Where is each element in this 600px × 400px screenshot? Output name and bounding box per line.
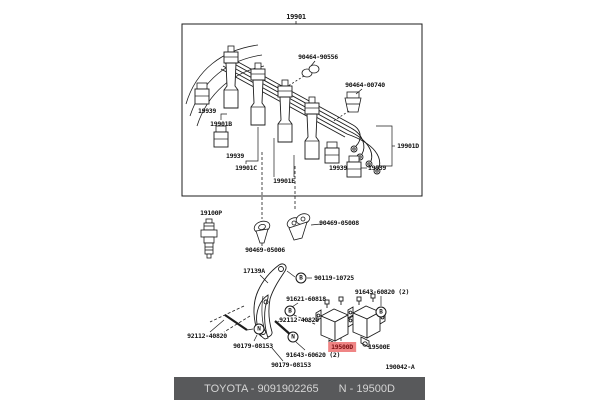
part-label-holder-3: 19939 (329, 164, 347, 172)
footer-reference-text: N - 19500D (339, 383, 395, 395)
figure-code-label: 190042-A (386, 363, 415, 371)
part-label-coil-no2: 19500E (368, 343, 390, 351)
bolt-callout-circle: B (376, 307, 387, 318)
footer-bar: TOYOTA - 9091902265 N - 19500D (174, 377, 425, 400)
bolt-callout-circle: B (296, 273, 307, 284)
part-label-cord-no4: 19901D (397, 142, 419, 150)
plug-boot-drawing (278, 80, 292, 142)
part-label-holder-1: 19939 (198, 107, 216, 115)
part-label-holder-4: 19939 (368, 164, 386, 172)
cord-clamp-drawing (288, 61, 319, 86)
spark-plug-drawing (201, 219, 217, 258)
part-label-stud-1: 92112-40820 (279, 316, 319, 324)
cord-grommet-drawing (332, 89, 362, 122)
nut-callout-circle: N (254, 324, 265, 335)
bolt-callout-circle: B (285, 306, 296, 317)
part-label-bolt-upper: 90119-10725 (314, 274, 354, 282)
part-label-coil-no1-highlighted: 19500D (328, 342, 356, 352)
part-label-bracket: 17139A (243, 267, 265, 275)
position-sensor-a-drawing (253, 219, 272, 246)
part-label-bolt-lower: 91643-60620 (2) (286, 351, 340, 359)
part-label-sensor-a: 90469-05006 (245, 246, 285, 254)
part-label-cord-set: 19901 (286, 13, 306, 21)
cord-holder-drawing (195, 83, 209, 104)
part-label-nut-2: 90179-08153 (271, 361, 311, 369)
part-label-clamp-b: 90464-00740 (345, 81, 385, 89)
cord-holder-drawing (347, 156, 361, 177)
part-label-cord-no3: 19901C (235, 164, 257, 172)
part-label-bolt-right: 91643-60820 (2) (355, 288, 409, 296)
part-label-stud-2: 92112-40820 (187, 332, 227, 340)
cord-holder-drawing (214, 126, 228, 147)
part-label-cord-no5: 19901E (273, 177, 295, 185)
footer-part-number-text: TOYOTA - 9091902265 (204, 383, 319, 395)
part-label-nut-1: 90179-08153 (233, 342, 273, 350)
plug-boot-drawing (305, 97, 319, 159)
parts-diagram-page: 19901 90464-90556 90464-00740 19939 1990… (0, 0, 600, 400)
part-label-cord-no2: 19901B (210, 120, 232, 128)
ignition-coil-2-drawing (348, 294, 385, 347)
part-label-holder-2: 19939 (226, 152, 244, 160)
position-sensor-b-drawing (286, 212, 321, 240)
nut-callout-circle: N (288, 332, 299, 343)
part-label-spark-plug: 19100P (200, 209, 222, 217)
cord-holder-drawing (325, 142, 339, 163)
part-label-bolt-mid: 91621-60818 (286, 295, 326, 303)
part-label-clamp-a: 90464-90556 (298, 53, 338, 61)
part-label-sensor-b: 90469-05008 (319, 219, 359, 227)
plug-boot-drawing (251, 63, 265, 125)
